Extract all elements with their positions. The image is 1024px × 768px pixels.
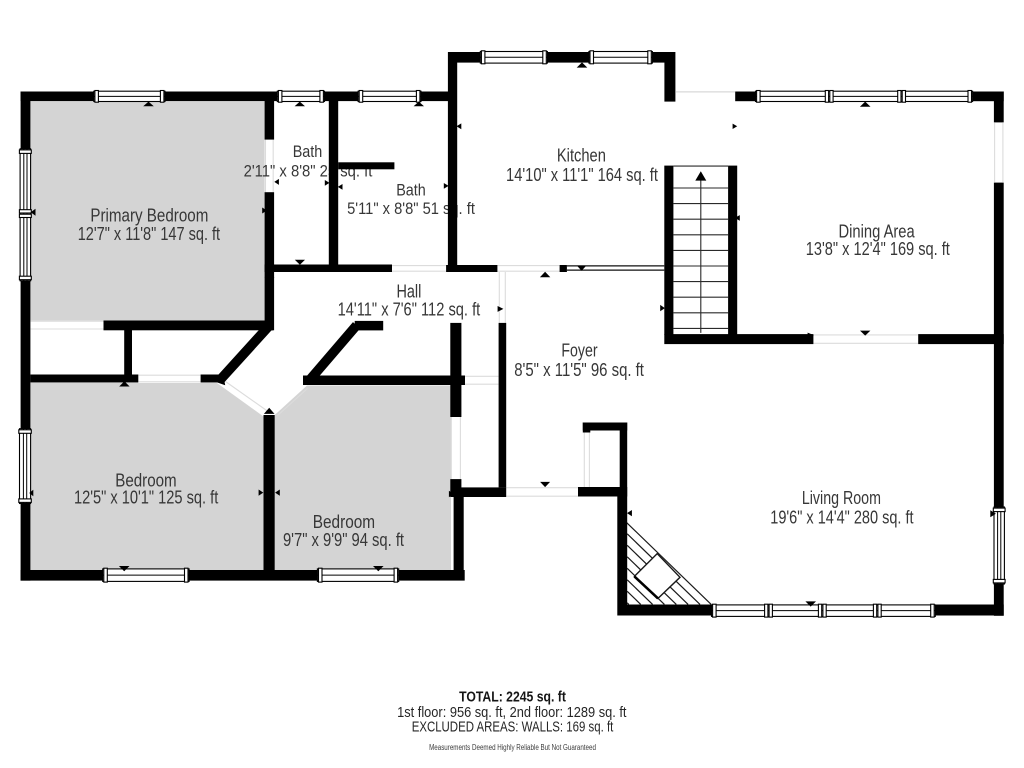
svg-text:14'10" x 11'1" 164 sq. ft: 14'10" x 11'1" 164 sq. ft [506, 164, 658, 185]
svg-text:19'6" x 14'4" 280 sq. ft: 19'6" x 14'4" 280 sq. ft [770, 507, 914, 528]
svg-text:EXCLUDED AREAS: WALLS: 169 sq.: EXCLUDED AREAS: WALLS: 169 sq. ft [412, 718, 614, 735]
svg-text:Kitchen: Kitchen [557, 145, 606, 166]
svg-text:Living Room: Living Room [802, 488, 881, 508]
svg-text:8'5" x 11'5" 96 sq. ft: 8'5" x 11'5" 96 sq. ft [514, 359, 644, 380]
svg-text:12'5" x 10'1" 125 sq. ft: 12'5" x 10'1" 125 sq. ft [74, 487, 219, 508]
svg-text:Foyer: Foyer [561, 341, 598, 361]
svg-text:9'7" x 9'9" 94 sq. ft: 9'7" x 9'9" 94 sq. ft [283, 529, 404, 550]
svg-text:Measurements Deemed Highly Rel: Measurements Deemed Highly Reliable But … [429, 742, 596, 752]
svg-text:Bath: Bath [293, 143, 323, 161]
svg-text:14'11" x 7'6" 112 sq. ft: 14'11" x 7'6" 112 sq. ft [338, 299, 481, 320]
svg-text:12'7" x 11'8" 147 sq. ft: 12'7" x 11'8" 147 sq. ft [78, 223, 221, 244]
svg-text:13'8" x 12'4" 169 sq. ft: 13'8" x 12'4" 169 sq. ft [806, 238, 950, 259]
svg-text:Bath: Bath [396, 182, 426, 200]
